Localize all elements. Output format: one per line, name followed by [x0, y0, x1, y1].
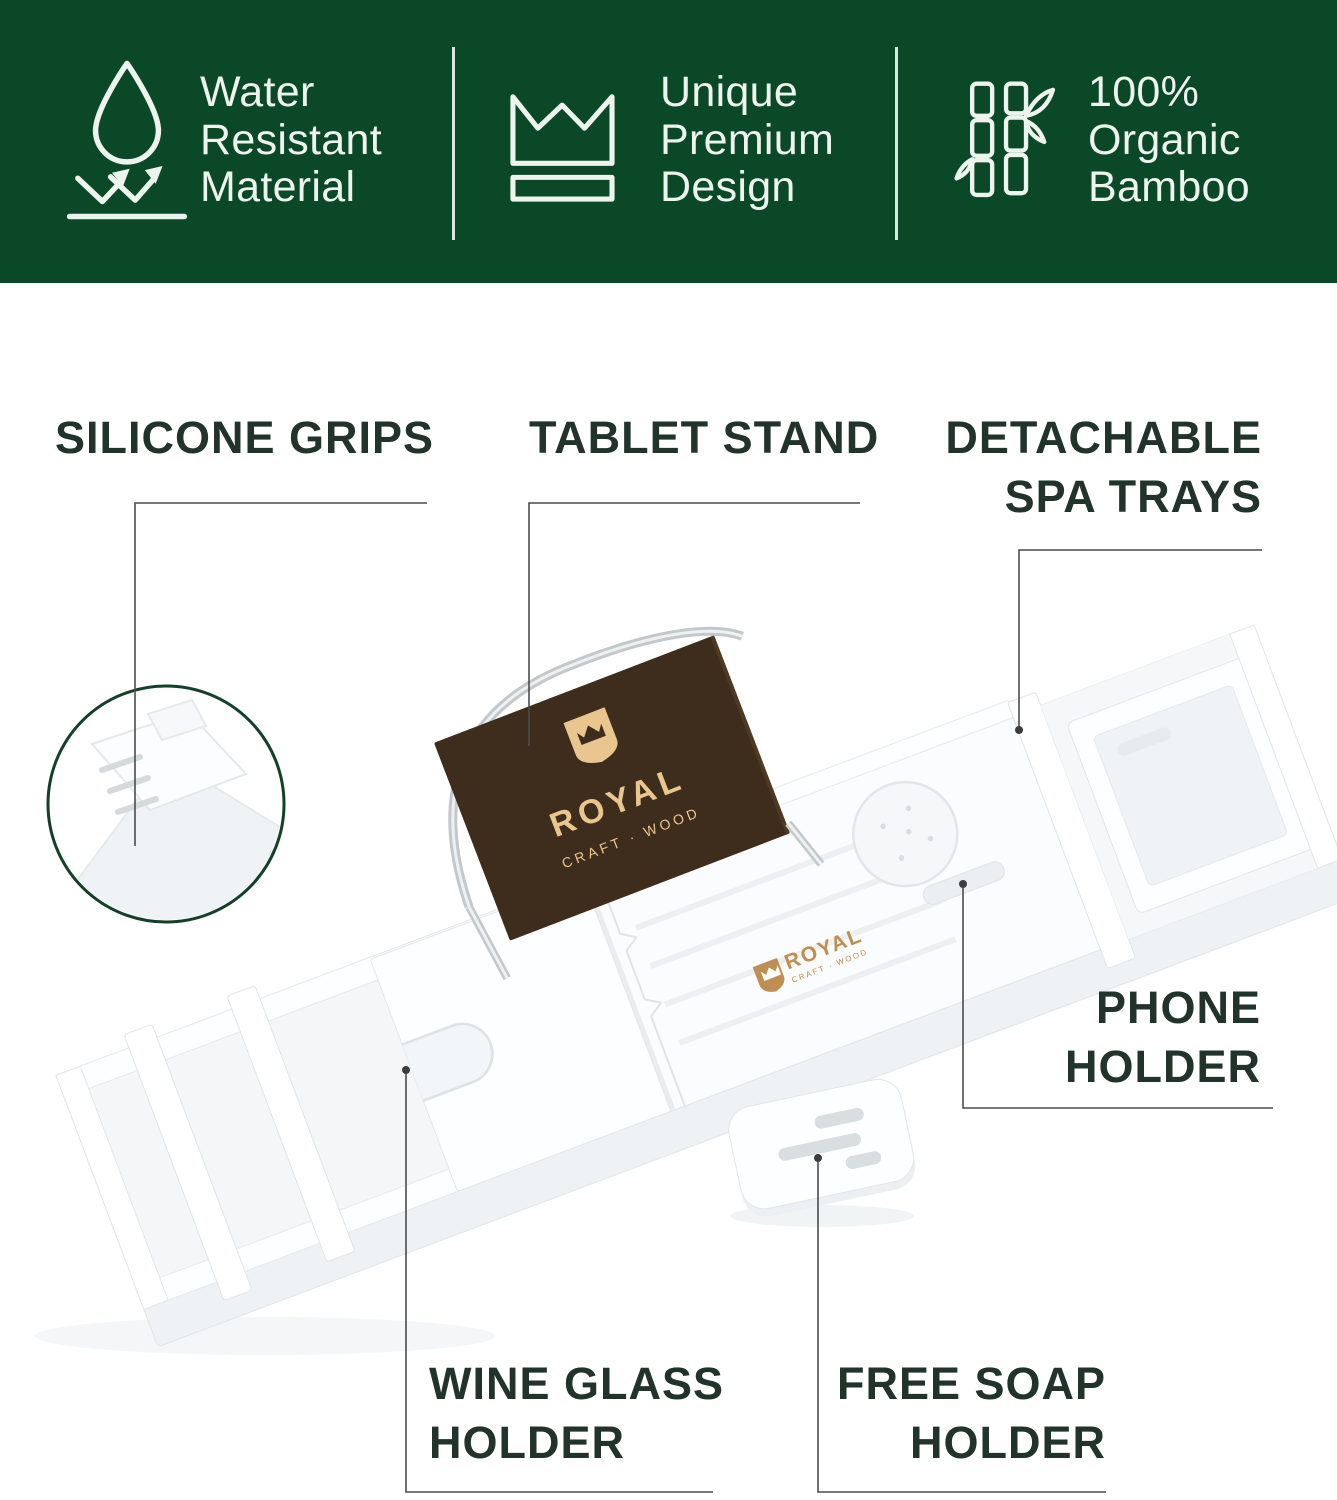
label-line: SILICONE GRIPS [55, 408, 434, 467]
soap-holder-dot [814, 1154, 822, 1162]
wine-glass-dot [402, 1066, 410, 1074]
silicone-grip-magnifier [48, 686, 330, 992]
tray-shadow [35, 1317, 495, 1355]
label-line: DETACHABLE [945, 408, 1262, 467]
label-line: SPA TRAYS [945, 467, 1262, 526]
label-line: TABLET STAND [529, 408, 879, 467]
label-tablet-stand: TABLET STAND [529, 408, 879, 467]
label-line: PHONE [1065, 978, 1261, 1037]
label-wine-glass-holder: WINE GLASS HOLDER [429, 1354, 724, 1472]
spa-trays-dot [1015, 726, 1023, 734]
label-line: HOLDER [429, 1413, 724, 1472]
label-silicone-grips: SILICONE GRIPS [55, 408, 434, 467]
product-illustration: ROYAL CRAFT · WOOD ROYAL CRAFT · WOOD [0, 0, 1337, 1500]
label-detachable-spa-trays: DETACHABLE SPA TRAYS [945, 408, 1262, 526]
label-phone-holder: PHONE HOLDER [1065, 978, 1261, 1096]
label-line: WINE GLASS [429, 1354, 724, 1413]
label-line: HOLDER [1065, 1037, 1261, 1096]
label-free-soap-holder: FREE SOAP HOLDER [837, 1354, 1106, 1472]
label-line: FREE SOAP [837, 1354, 1106, 1413]
label-line: HOLDER [837, 1413, 1106, 1472]
phone-holder-dot [959, 880, 967, 888]
